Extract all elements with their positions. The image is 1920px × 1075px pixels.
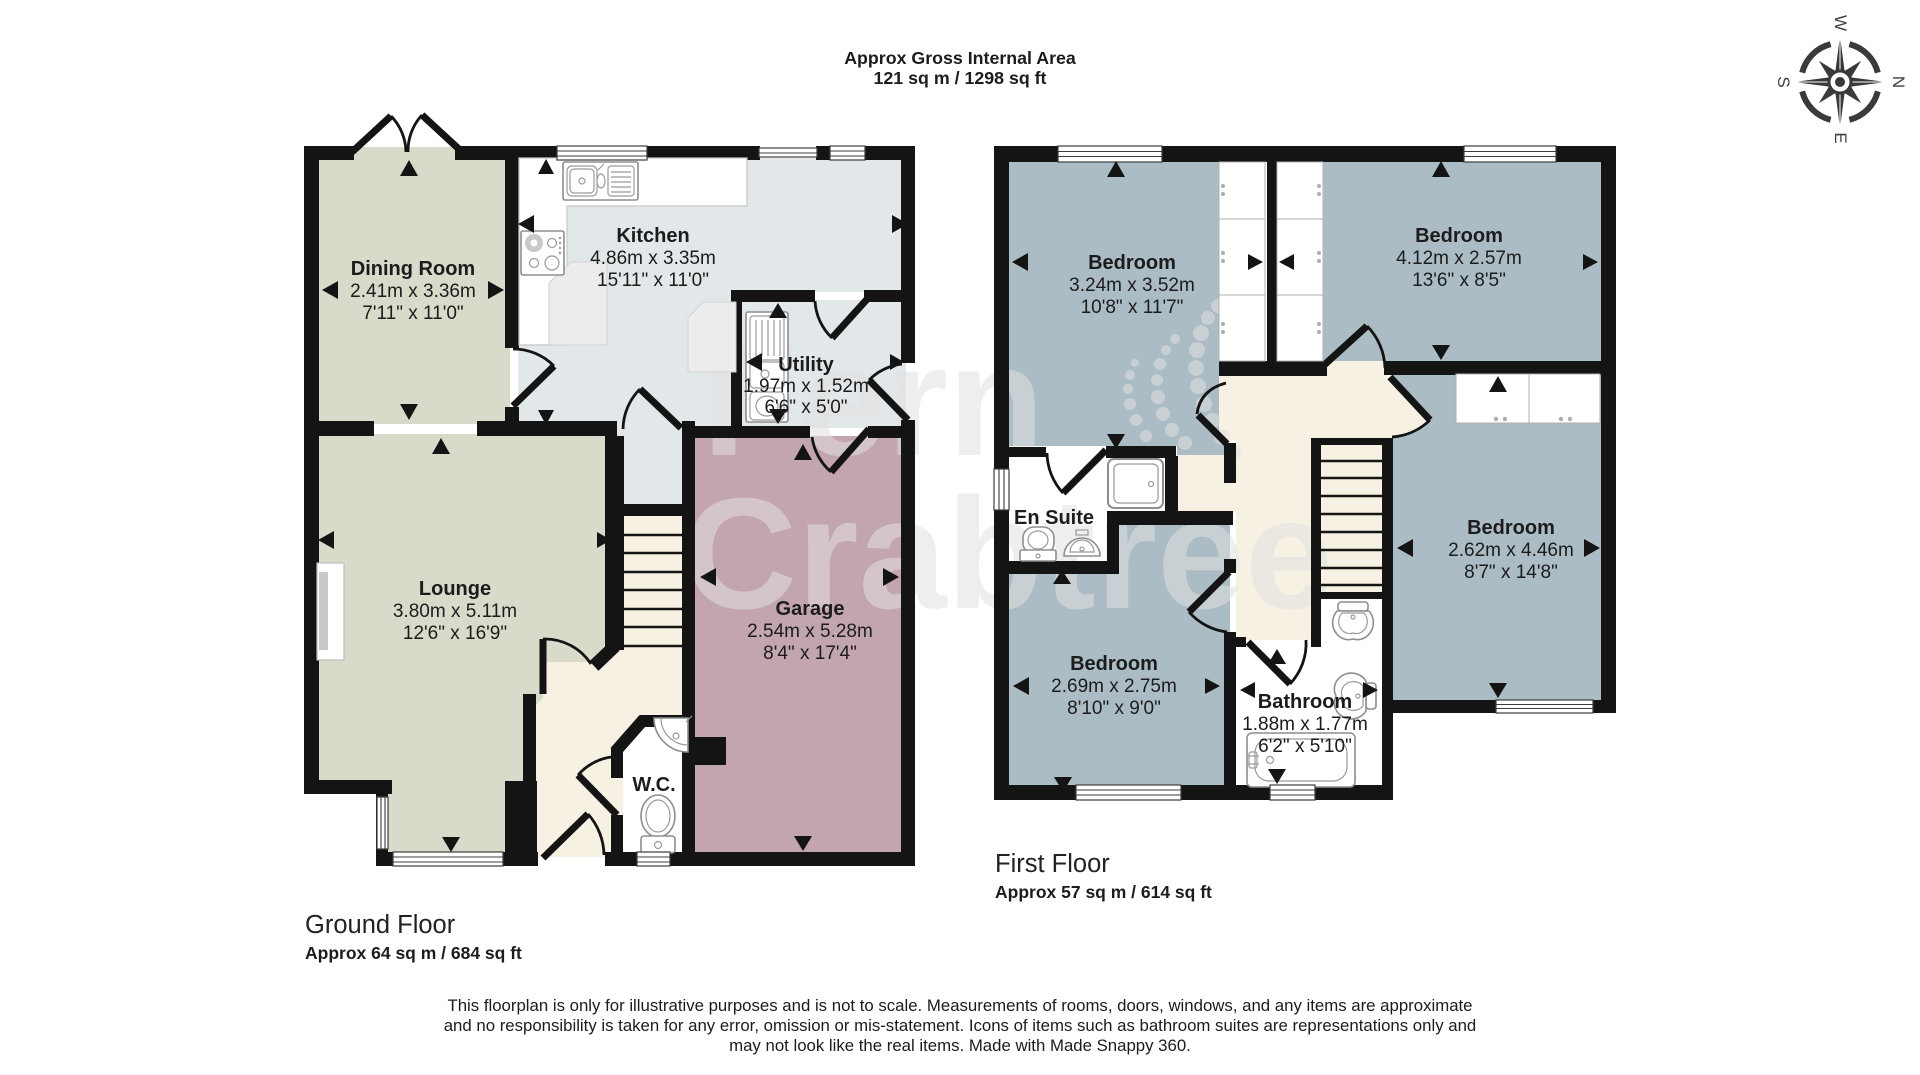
svg-text:7'11" x 11'0": 7'11" x 11'0" [362, 303, 463, 324]
svg-text:Bedroom: Bedroom [1415, 225, 1503, 247]
svg-text:W.C.: W.C. [632, 774, 675, 796]
svg-text:Bedroom: Bedroom [1467, 517, 1555, 539]
svg-text:2.69m x 2.75m: 2.69m x 2.75m [1051, 676, 1177, 697]
svg-text:3.80m x 5.11m: 3.80m x 5.11m [393, 601, 517, 622]
svg-text:6'2" x 5'10": 6'2" x 5'10" [1258, 736, 1352, 757]
svg-text:and no responsibility is taken: and no responsibility is taken for any e… [444, 1016, 1477, 1035]
svg-text:This floorplan is only for ill: This floorplan is only for illustrative … [447, 996, 1472, 1015]
svg-text:12'6" x 16'9": 12'6" x 16'9" [403, 623, 507, 644]
svg-text:En Suite: En Suite [1014, 507, 1094, 529]
svg-text:2.54m x 5.28m: 2.54m x 5.28m [747, 621, 873, 642]
svg-text:Garage: Garage [776, 598, 845, 620]
svg-text:2.41m x 3.36m: 2.41m x 3.36m [350, 281, 476, 302]
svg-text:4.12m x 2.57m: 4.12m x 2.57m [1396, 248, 1522, 269]
svg-text:8'10" x 9'0": 8'10" x 9'0" [1067, 698, 1161, 719]
svg-text:Ground Floor: Ground Floor [305, 911, 456, 939]
svg-text:13'6" x 8'5": 13'6" x 8'5" [1412, 270, 1506, 291]
svg-text:4.86m x 3.35m: 4.86m x 3.35m [590, 248, 716, 269]
svg-text:W: W [1831, 15, 1850, 31]
svg-text:121 sq m / 1298 sq ft: 121 sq m / 1298 sq ft [874, 68, 1047, 88]
svg-text:Bedroom: Bedroom [1088, 252, 1176, 274]
svg-text:1.88m x 1.77m: 1.88m x 1.77m [1242, 714, 1368, 735]
svg-text:Bathroom: Bathroom [1258, 691, 1352, 713]
svg-text:8'4" x 17'4": 8'4" x 17'4" [763, 643, 857, 664]
svg-text:Approx 57 sq m / 614 sq ft: Approx 57 sq m / 614 sq ft [995, 882, 1212, 902]
svg-text:Lounge: Lounge [419, 578, 491, 600]
svg-text:S: S [1774, 76, 1793, 87]
svg-text:2.62m x 4.46m: 2.62m x 4.46m [1448, 540, 1574, 561]
svg-text:Dining Room: Dining Room [351, 258, 475, 280]
svg-text:8'7" x 14'8": 8'7" x 14'8" [1464, 562, 1558, 583]
svg-text:Approx 64 sq m / 684 sq ft: Approx 64 sq m / 684 sq ft [305, 943, 522, 963]
svg-text:First Floor: First Floor [995, 850, 1110, 878]
svg-text:15'11" x 11'0": 15'11" x 11'0" [597, 270, 709, 291]
svg-text:Kitchen: Kitchen [616, 225, 689, 247]
svg-text:10'8" x 11'7": 10'8" x 11'7" [1081, 297, 1184, 318]
svg-text:1.97m x 1.52m: 1.97m x 1.52m [743, 376, 869, 397]
svg-text:N: N [1889, 76, 1908, 88]
svg-text:may not look like the real ite: may not look like the real items. Made w… [729, 1036, 1191, 1055]
svg-text:Bedroom: Bedroom [1070, 653, 1158, 675]
svg-text:Utility: Utility [778, 354, 834, 376]
svg-text:Approx Gross Internal Area: Approx Gross Internal Area [844, 48, 1076, 68]
svg-text:E: E [1831, 132, 1850, 143]
svg-text:6'6" x 5'0": 6'6" x 5'0" [764, 397, 847, 418]
svg-text:3.24m x 3.52m: 3.24m x 3.52m [1069, 275, 1195, 296]
